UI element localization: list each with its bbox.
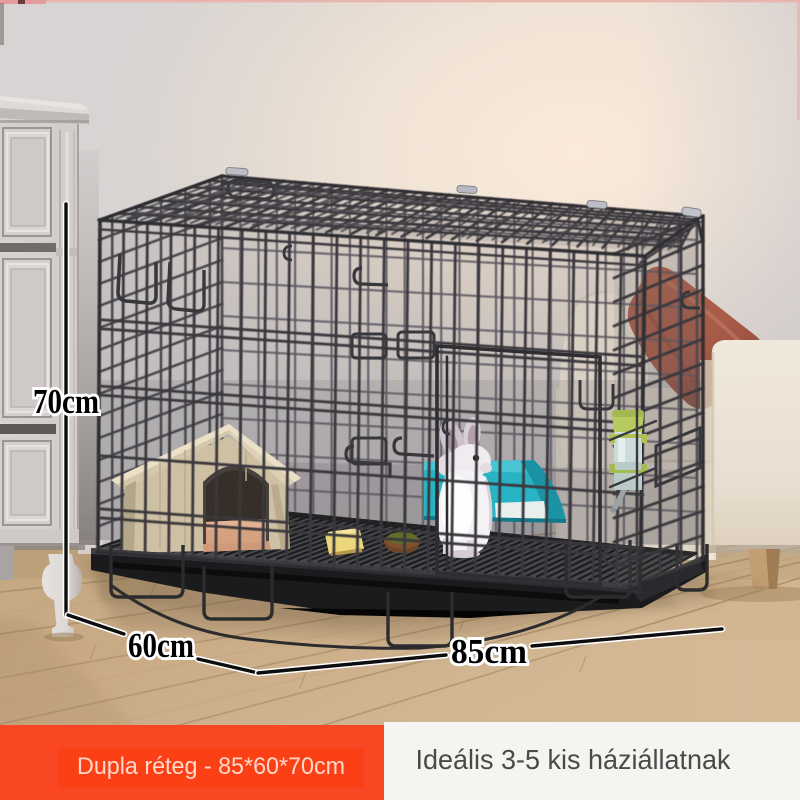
svg-text:70cm: 70cm	[33, 382, 99, 421]
svg-text:60cm: 60cm	[128, 626, 194, 665]
svg-text:85cm: 85cm	[451, 632, 527, 671]
svg-text:Ideális 3-5 kis háziállatnak: Ideális 3-5 kis háziállatnak	[416, 744, 732, 775]
svg-text:Dupla réteg - 85*60*70cm: Dupla réteg - 85*60*70cm	[77, 753, 345, 780]
